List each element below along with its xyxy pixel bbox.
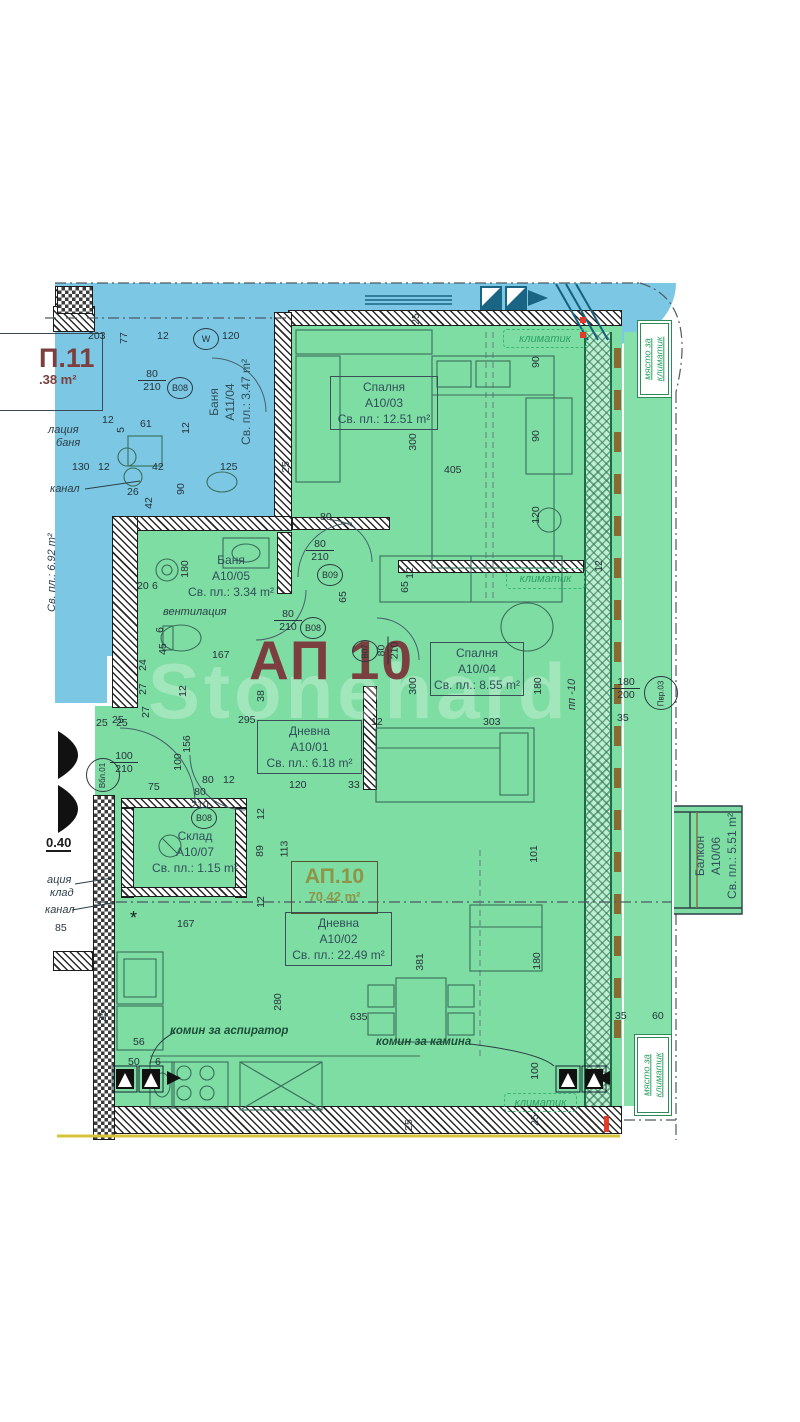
apartment-11-label-box: П.11 .38 m² (0, 333, 103, 411)
annotation-note: вентилация (163, 606, 227, 618)
annotation-note: клад (50, 887, 74, 899)
door-width: 100 (110, 750, 138, 763)
room-label-a10-03: СпалняA10/03Св. пл.: 12.51 m² (330, 376, 438, 430)
annotation-note: лация (48, 424, 79, 436)
door-tag-text: B08 (172, 383, 188, 393)
annotation-note: канал (45, 904, 75, 916)
door-height: 200 (612, 689, 640, 701)
dimension: 300 (407, 433, 419, 451)
room-code: A10/07 (148, 844, 242, 860)
dimension: 635 (350, 1011, 368, 1023)
dimension: 75 (148, 781, 160, 793)
room-code: A10/05 (185, 568, 277, 584)
door-height: 210 (186, 799, 214, 811)
dimension: 12 (157, 330, 169, 342)
room-area: Св. пл.: 3.34 m² (185, 584, 277, 600)
room-code: A11/04 (222, 346, 238, 458)
dimension: 6 (155, 1056, 161, 1068)
room-area: Св. пл.: 3.47 m² (238, 346, 254, 458)
dimension: 120 (222, 330, 240, 342)
dimension: 20 (137, 580, 149, 592)
room-name: Дневна (260, 723, 359, 739)
dimension: 280 (272, 993, 284, 1011)
dimension: 12 (177, 685, 189, 697)
dimension: 90 (530, 356, 542, 368)
room-name: Баня (206, 346, 222, 458)
room-code: A10/03 (333, 395, 435, 411)
dimension: 90 (530, 430, 542, 442)
door-tag-text: Вбл.01 (98, 762, 107, 787)
hvac-label-text: климатик (515, 1097, 567, 1109)
door-size: 100210 (110, 750, 138, 775)
door-tag-text: W (202, 334, 211, 344)
door-tag-text: B07 (360, 644, 369, 658)
door-height: 210 (389, 637, 401, 665)
room-name: Дневна (288, 915, 389, 931)
dimension: 156 (181, 735, 193, 753)
door-tag-text: B08 (305, 623, 321, 633)
room-area: Св. пл.: 6.18 m² (260, 755, 359, 771)
dimension: 26 (127, 486, 139, 498)
dimension: 405 (444, 464, 462, 476)
door-size: 80210 (376, 637, 401, 665)
room-area: Св. пл.: 1.15 m² (148, 860, 242, 876)
room-label-a10-07: СкладA10/07Св. пл.: 1.15 m² (148, 828, 242, 876)
annotation-chimney: комин за камина (376, 1036, 471, 1048)
room-name: Спалня (433, 645, 521, 661)
annotation-elev: 0.40 (46, 835, 71, 852)
room-label-a11-04: БаняA11/04Св. пл.: 3.47 m² (206, 346, 254, 458)
plan-linework (0, 0, 800, 1422)
dimension: 6 (154, 627, 166, 633)
room-label-a10-02: ДневнаA10/02Св. пл.: 22.49 m² (285, 912, 392, 966)
dimension: 12 (102, 414, 114, 426)
dimension: 180 (179, 560, 191, 578)
door-tag-text: B08 (196, 813, 212, 823)
dimension: 180 (531, 952, 543, 970)
room-label-a10-04: СпалняA10/04Св. пл.: 8.55 m² (430, 642, 524, 696)
door-tag-b08: B08 (300, 617, 326, 639)
dimension: 180 (532, 677, 544, 695)
dimension: 77 (118, 332, 130, 344)
door-tag-b08: B08 (167, 377, 193, 399)
dimension: 56 (133, 1036, 145, 1048)
dimension: 35 (615, 1010, 627, 1022)
dimension: 65 (337, 591, 349, 603)
dimension: 120 (530, 506, 542, 524)
hvac-label-text: място за климатик (643, 337, 667, 382)
dimension: 25 (96, 717, 108, 729)
apartment-10-title: АП.10 (292, 865, 377, 889)
dimension: 25 (403, 1119, 415, 1131)
dimension: 12 (98, 461, 110, 473)
door-tag-b07: B07 (352, 640, 378, 662)
annotation-chimney: комин за аспиратор (170, 1025, 288, 1037)
dimension: 120 (289, 779, 307, 791)
room-name: Спалня (333, 379, 435, 395)
dimension: 130 (72, 461, 90, 473)
dimension: 80 (202, 774, 214, 786)
hvac-unit-label: климатик (503, 329, 587, 348)
door-tag-пвр-03: Пвр.03 (644, 676, 678, 710)
door-width: 80 (306, 538, 334, 551)
door-size: 180200 (612, 676, 640, 701)
hvac-place-label: място за климатик (637, 320, 672, 398)
door-width: 80 (376, 637, 389, 665)
room-code: A10/04 (433, 661, 521, 677)
annotation-dim: 85 (55, 922, 67, 934)
door-width: 80 (186, 786, 214, 799)
dimension: 100 (529, 1062, 541, 1080)
dimension: 25 (116, 717, 128, 729)
door-tag-text: B09 (322, 570, 338, 580)
dimension: 101 (528, 845, 540, 863)
dimension: 42 (143, 497, 155, 509)
dimension: 25 (97, 1010, 109, 1022)
dimension: 12 (255, 808, 267, 820)
room-area: Св. пл.: 5.51 m² (724, 810, 740, 902)
dimension: 295 (238, 714, 256, 726)
room-label-a10-06: БалконA10/06Св. пл.: 5.51 m² (692, 810, 740, 902)
door-tag-b09: B09 (317, 564, 343, 586)
apartment-11-area-value: .38 m² (39, 372, 102, 387)
dimension: 303 (483, 716, 501, 728)
floor-plan: Stonehard АП 10 П.11 .38 m² АП.10 70.42 … (0, 0, 800, 1422)
room-label-a10-05: БаняA10/05Св. пл.: 3.34 m² (185, 552, 277, 600)
dimension: 27 (140, 706, 152, 718)
door-size: 80210 (186, 786, 214, 811)
dimension: 90 (175, 483, 187, 495)
dimension: 60 (652, 1010, 664, 1022)
dimension: 25 (280, 461, 292, 473)
room-name: Баня (185, 552, 277, 568)
door-height: 210 (274, 621, 302, 633)
dimension: 12 (593, 560, 605, 572)
door-height: 210 (306, 551, 334, 563)
room-name: Балкон (692, 810, 708, 902)
dimension: 25 (529, 1114, 541, 1126)
door-width: 180 (612, 676, 640, 689)
dimension: 167 (212, 649, 230, 661)
dimension: 61 (140, 418, 152, 430)
apartment-10-summary-box: АП.10 70.42 m² (291, 861, 378, 914)
hvac-unit-label: климатик (506, 568, 585, 589)
dimension: 12 (255, 896, 267, 908)
door-size: 80210 (274, 608, 302, 633)
room-code: A10/06 (708, 810, 724, 902)
room-code: A10/01 (260, 739, 359, 755)
door-width: 80 (138, 368, 166, 381)
dimension: 33 (348, 779, 360, 791)
hvac-label-text: климатик (520, 573, 572, 585)
dimension: 12 (404, 567, 416, 579)
annotation-star: * (130, 908, 137, 929)
dimension: 35 (617, 712, 629, 724)
dimension: 27 (137, 683, 149, 695)
apartment-11-title: П.11 (39, 344, 102, 372)
dimension: 12 (180, 422, 192, 434)
dimension: 381 (414, 953, 426, 971)
apartment-10-area-value: 70.42 m² (292, 889, 377, 904)
room-area: Св. пл.: 22.49 m² (288, 947, 389, 963)
door-tag-w: W (193, 328, 219, 350)
dimension: 125 (220, 461, 238, 473)
dimension: 25 (410, 313, 422, 325)
dimension: 203 (88, 330, 106, 342)
dimension: 50 (128, 1056, 140, 1068)
dimension: 300 (407, 677, 419, 695)
dimension: 80 (320, 511, 332, 523)
dimension: 38 (255, 690, 267, 702)
dimension: 12 (223, 774, 235, 786)
annotation-note: пп -10 (566, 679, 578, 710)
hvac-label-text: климатик (519, 333, 571, 345)
door-tag-text: Пвр.03 (656, 680, 665, 706)
room-label-a10-01: ДневнаA10/01Св. пл.: 6.18 m² (257, 720, 362, 774)
hvac-label-text: място за климатик (641, 1053, 665, 1098)
dimension: 100 (172, 753, 184, 771)
dimension: 89 (254, 845, 266, 857)
dimension: 24 (137, 659, 149, 671)
room-area: Св. пл.: 8.55 m² (433, 677, 521, 693)
annotation-note: канал (50, 483, 80, 495)
door-height: 210 (138, 381, 166, 393)
dimension: 45 (157, 643, 169, 655)
annotation-note: Св. пл.: 6.92 m² (46, 533, 58, 612)
dimension: 167 (177, 918, 195, 930)
door-size: 80210 (306, 538, 334, 563)
room-code: A10/02 (288, 931, 389, 947)
dimension: 5 (115, 427, 127, 433)
annotation-note: ация (47, 874, 71, 886)
room-name: Склад (148, 828, 242, 844)
annotation-note: баня (56, 437, 80, 449)
door-height: 210 (110, 763, 138, 775)
door-width: 80 (274, 608, 302, 621)
door-size: 80210 (138, 368, 166, 393)
hvac-unit-label: климатик (504, 1093, 577, 1112)
dimension: 6 (152, 580, 158, 592)
dimension: 12 (371, 716, 383, 728)
hvac-place-label: място за климатик (634, 1034, 672, 1116)
dimension: 42 (152, 461, 164, 473)
dimension: 65 (399, 581, 411, 593)
room-area: Св. пл.: 12.51 m² (333, 411, 435, 427)
dimension: 113 (278, 841, 290, 858)
